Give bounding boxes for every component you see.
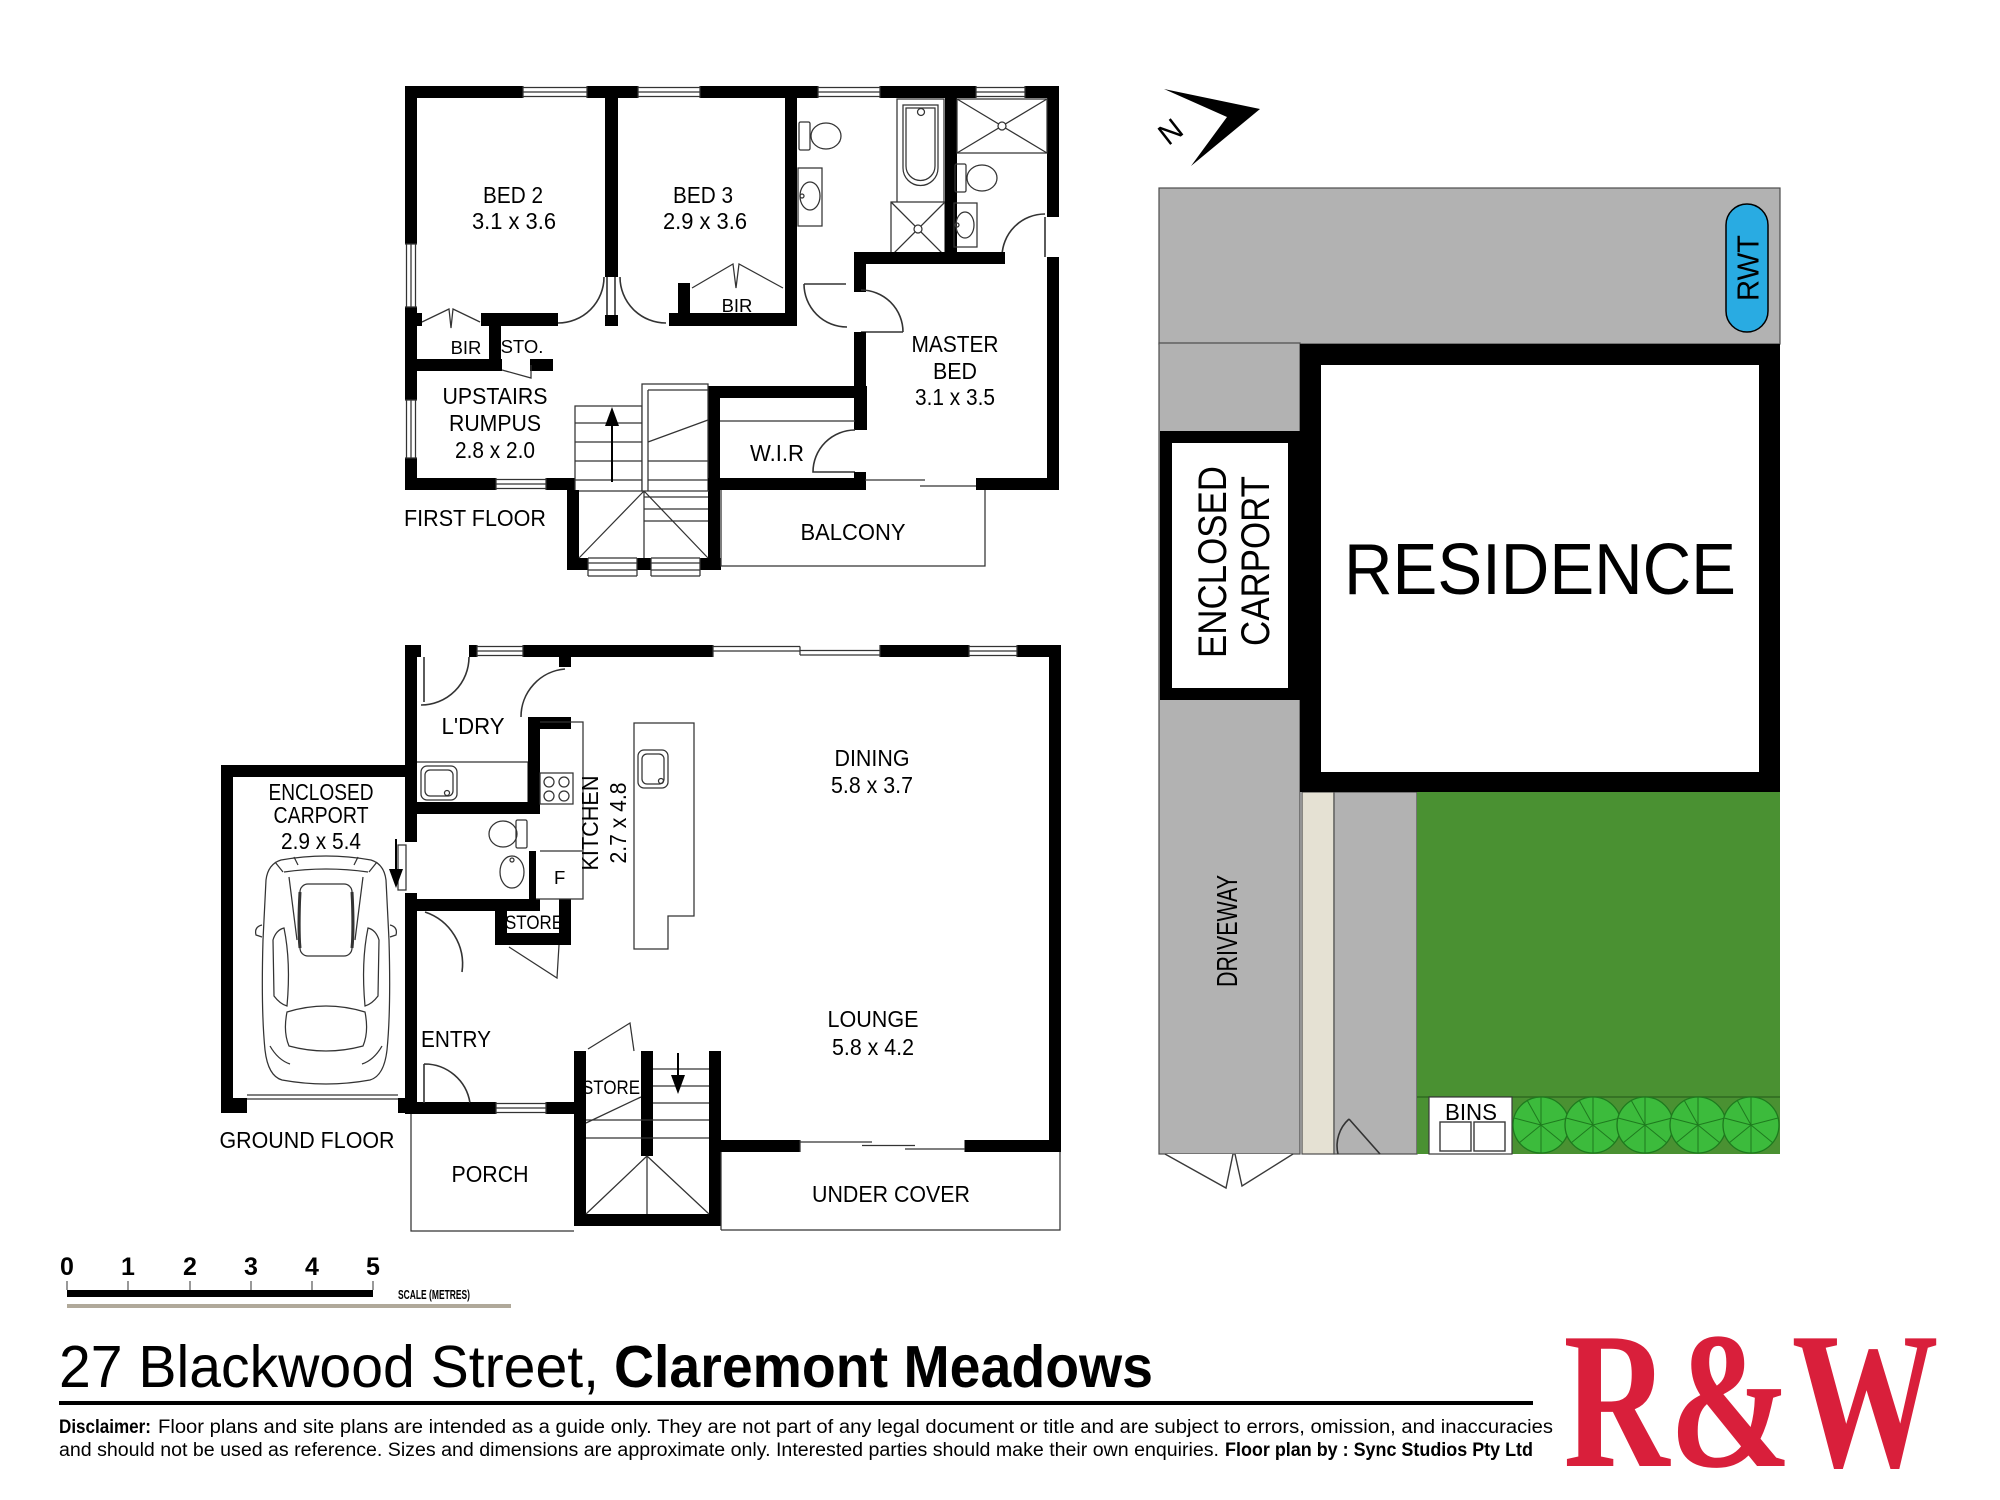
svg-text:2.9 x 3.6: 2.9 x 3.6	[663, 208, 747, 234]
svg-text:RWT: RWT	[1731, 235, 1766, 301]
svg-text:Floor plan by : Sync Studios P: Floor plan by : Sync Studios Pty Ltd	[1225, 1440, 1533, 1461]
svg-text:5.8 x 3.7: 5.8 x 3.7	[831, 772, 913, 798]
svg-text:BALCONY: BALCONY	[801, 519, 906, 545]
svg-text:KITCHEN: KITCHEN	[577, 776, 603, 871]
svg-text:DRIVEWAY: DRIVEWAY	[1212, 875, 1244, 987]
svg-text:STORE: STORE	[505, 913, 563, 934]
svg-text:BED 2: BED 2	[483, 182, 543, 208]
svg-text:27 Blackwood Street,: 27 Blackwood Street,	[59, 1334, 599, 1400]
svg-text:Floor plans and site plans are: Floor plans and site plans are intended …	[158, 1417, 1553, 1438]
svg-text:BED 3: BED 3	[673, 182, 733, 208]
svg-text:2.9 x 5.4: 2.9 x 5.4	[281, 828, 361, 854]
svg-text:2: 2	[183, 1253, 197, 1281]
svg-text:BINS: BINS	[1445, 1099, 1497, 1125]
svg-text:BIR: BIR	[722, 295, 753, 316]
svg-text:RUMPUS: RUMPUS	[449, 410, 541, 436]
svg-text:4: 4	[305, 1253, 319, 1281]
svg-text:0: 0	[60, 1253, 74, 1281]
svg-text:LOUNGE: LOUNGE	[828, 1006, 919, 1032]
svg-text:PORCH: PORCH	[452, 1161, 529, 1187]
svg-text:BIR: BIR	[451, 337, 482, 358]
svg-text:2.7 x 4.8: 2.7 x 4.8	[605, 783, 631, 864]
svg-text:1: 1	[121, 1253, 135, 1281]
svg-text:UNDER COVER: UNDER COVER	[812, 1181, 970, 1207]
svg-text:5.8 x 4.2: 5.8 x 4.2	[832, 1034, 914, 1060]
svg-text:CARPORT: CARPORT	[1234, 476, 1278, 646]
svg-text:3.1 x 3.5: 3.1 x 3.5	[915, 384, 995, 410]
svg-text:5: 5	[366, 1253, 380, 1281]
svg-text:ENCLOSED: ENCLOSED	[1191, 466, 1235, 658]
svg-text:UPSTAIRS: UPSTAIRS	[443, 383, 548, 409]
svg-text:STO.: STO.	[501, 336, 544, 357]
svg-text:DINING: DINING	[835, 745, 910, 771]
svg-text:3.1 x 3.6: 3.1 x 3.6	[472, 208, 556, 234]
svg-text:FIRST FLOOR: FIRST FLOOR	[404, 505, 546, 531]
svg-text:CARPORT: CARPORT	[274, 802, 369, 828]
svg-text:STORE: STORE	[582, 1078, 640, 1099]
svg-text:ENTRY: ENTRY	[421, 1026, 491, 1052]
svg-text:MASTER: MASTER	[912, 331, 999, 357]
svg-text:SCALE (METRES): SCALE (METRES)	[398, 1288, 470, 1302]
svg-text:RESIDENCE: RESIDENCE	[1344, 530, 1736, 610]
svg-text:and should not be used as refe: and should not be used as reference. Siz…	[59, 1440, 1219, 1461]
svg-text:R&W: R&W	[1564, 1293, 1939, 1500]
svg-text:3: 3	[244, 1253, 258, 1281]
svg-text:L'DRY: L'DRY	[442, 713, 505, 739]
svg-text:F: F	[554, 867, 565, 888]
svg-text:Disclaimer:: Disclaimer:	[59, 1417, 151, 1438]
svg-text:GROUND FLOOR: GROUND FLOOR	[220, 1127, 395, 1153]
svg-text:BED: BED	[933, 358, 977, 384]
svg-text:Claremont Meadows: Claremont Meadows	[614, 1334, 1153, 1400]
svg-text:2.8 x 2.0: 2.8 x 2.0	[455, 437, 535, 463]
svg-text:W.I.R: W.I.R	[750, 440, 804, 466]
